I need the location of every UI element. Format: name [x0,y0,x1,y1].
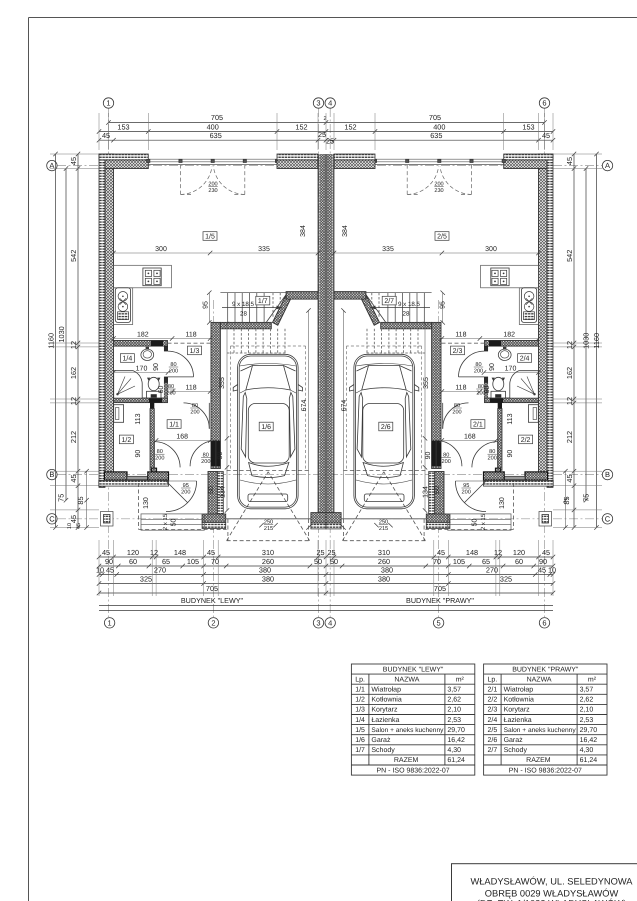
svg-text:215: 215 [379,526,388,532]
svg-text:200: 200 [181,489,190,495]
svg-text:1160: 1160 [592,333,601,349]
svg-text:5: 5 [437,618,441,627]
svg-text:270: 270 [486,565,498,574]
svg-text:3,57: 3,57 [447,687,461,694]
svg-text:2,10: 2,10 [580,707,594,714]
svg-text:380: 380 [381,565,393,574]
svg-text:335: 335 [258,246,270,253]
svg-text:1: 1 [106,99,110,108]
svg-text:384: 384 [342,225,349,237]
svg-text:200: 200 [442,459,451,465]
svg-text:45: 45 [538,565,546,574]
svg-text:61,24: 61,24 [580,757,598,764]
svg-text:PN - ISO 9836:2022-07: PN - ISO 9836:2022-07 [377,767,450,774]
svg-text:2/3: 2/3 [488,706,498,714]
svg-text:705: 705 [211,113,223,122]
svg-text:182: 182 [137,332,149,339]
svg-text:45: 45 [69,515,78,523]
svg-text:85: 85 [562,496,571,504]
svg-text:45: 45 [542,131,550,140]
svg-text:1/7: 1/7 [355,746,365,754]
svg-text:90: 90 [507,450,514,458]
svg-text:4: 4 [328,99,332,108]
svg-text:10: 10 [96,565,104,574]
svg-text:2/7: 2/7 [384,297,394,305]
svg-text:45: 45 [76,523,82,529]
svg-text:148: 148 [466,548,478,557]
svg-text:635: 635 [430,131,442,140]
svg-text:90: 90 [135,450,142,458]
svg-text:61,24: 61,24 [447,757,465,764]
svg-text:2/5: 2/5 [437,233,447,241]
svg-text:105: 105 [187,557,199,566]
svg-text:m²: m² [456,676,465,683]
svg-text:335: 335 [382,246,394,253]
svg-text:130: 130 [143,497,150,509]
svg-text:Salon + aneks kuchenny: Salon + aneks kuchenny [504,727,577,734]
svg-text:200: 200 [452,409,461,415]
svg-text:674: 674 [341,400,348,412]
svg-text:705: 705 [434,584,446,593]
svg-text:200: 200 [166,390,175,396]
svg-text:50: 50 [171,519,178,527]
svg-text:200: 200 [462,489,471,495]
svg-text:Lp.: Lp. [488,676,498,683]
svg-text:3,57: 3,57 [580,687,594,694]
svg-text:45: 45 [106,565,114,574]
svg-text:2 x 15: 2 x 15 [162,513,169,530]
svg-text:1/2: 1/2 [122,436,132,444]
svg-text:25: 25 [327,548,335,557]
svg-text:6: 6 [542,99,546,108]
svg-text:118: 118 [455,385,466,392]
svg-text:200: 200 [190,409,199,415]
svg-text:1/2: 1/2 [355,696,365,704]
svg-text:B: B [49,470,54,479]
svg-text:50: 50 [330,557,338,566]
svg-text:Salon + aneks kuchenny: Salon + aneks kuchenny [371,727,444,734]
svg-text:148: 148 [174,548,186,557]
svg-text:60: 60 [158,386,165,394]
svg-text:Lp.: Lp. [355,676,365,683]
svg-text:WŁADYSŁAWÓW, UL. SELEDYNOWA: WŁADYSŁAWÓW, UL. SELEDYNOWA [470,876,633,887]
svg-text:200: 200 [201,459,210,465]
svg-text:6: 6 [542,618,546,627]
svg-text:50: 50 [208,486,215,494]
svg-text:C: C [49,514,55,523]
svg-text:113: 113 [135,413,142,424]
svg-text:300: 300 [485,246,497,253]
svg-text:118: 118 [186,385,197,392]
svg-text:200: 200 [169,368,178,374]
svg-text:OBRĘB 0029 WŁADYSŁAWÓW: OBRĘB 0029 WŁADYSŁAWÓW [485,888,619,899]
svg-text:2/6: 2/6 [381,423,391,431]
svg-text:118: 118 [455,332,466,339]
svg-text:9 x 18.5: 9 x 18.5 [398,301,421,308]
svg-text:1/5: 1/5 [205,233,215,241]
svg-text:1/3: 1/3 [190,347,200,355]
svg-text:2/1: 2/1 [488,686,498,694]
svg-text:BUDYNEK "LEWY": BUDYNEK "LEWY" [181,596,244,605]
svg-text:120: 120 [513,548,525,557]
svg-text:2,62: 2,62 [580,697,594,704]
svg-text:2/3: 2/3 [453,347,463,355]
svg-text:1/5: 1/5 [355,726,365,734]
svg-text:118: 118 [186,332,197,339]
svg-text:168: 168 [464,433,476,440]
svg-text:2/5: 2/5 [488,726,498,734]
svg-text:355: 355 [423,377,430,389]
svg-text:542: 542 [565,250,574,262]
svg-text:355: 355 [219,377,226,389]
svg-text:200: 200 [488,456,497,462]
svg-text:134: 134 [220,486,227,498]
svg-text:1/7: 1/7 [258,297,268,305]
svg-text:1/6: 1/6 [355,736,365,744]
svg-text:2/1: 2/1 [473,421,483,429]
svg-text:BUDYNEK "LEWY": BUDYNEK "LEWY" [383,666,444,673]
svg-text:PN - ISO 9836:2022-07: PN - ISO 9836:2022-07 [509,767,582,774]
svg-text:45: 45 [102,131,110,140]
svg-text:635: 635 [210,131,222,140]
svg-text:Kotłownia: Kotłownia [504,696,534,704]
svg-text:310: 310 [378,548,390,557]
svg-text:4,30: 4,30 [580,747,594,754]
svg-text:60: 60 [515,557,523,566]
svg-text:16,42: 16,42 [580,737,598,744]
svg-text:380: 380 [259,565,271,574]
svg-text:325: 325 [500,574,512,583]
svg-text:1/4: 1/4 [355,716,365,724]
svg-text:705: 705 [429,113,441,122]
svg-text:2 x 15: 2 x 15 [480,513,487,530]
svg-text:705: 705 [206,584,218,593]
svg-text:45: 45 [207,548,215,557]
svg-text:9 x 18.5: 9 x 18.5 [232,301,255,308]
svg-text:2,10: 2,10 [447,707,461,714]
svg-text:2/6: 2/6 [488,736,498,744]
svg-text:12: 12 [150,548,158,557]
svg-text:29,70: 29,70 [447,727,465,734]
svg-text:45: 45 [69,474,78,482]
svg-text:230: 230 [434,188,443,194]
svg-text:Wiatrołap: Wiatrołap [371,686,401,694]
svg-text:12: 12 [565,397,574,405]
svg-text:25: 25 [316,548,324,557]
svg-text:2/2: 2/2 [521,436,531,444]
svg-text:380: 380 [262,574,274,583]
svg-text:152: 152 [344,122,356,131]
svg-text:162: 162 [69,367,78,379]
svg-text:60: 60 [129,557,137,566]
svg-text:2/4: 2/4 [520,355,530,363]
svg-text:4: 4 [328,618,332,627]
svg-text:200: 200 [476,390,485,396]
svg-text:Garaż: Garaż [371,736,391,744]
svg-text:4,30: 4,30 [447,747,461,754]
svg-text:170: 170 [136,365,148,372]
svg-text:50: 50 [472,519,479,527]
svg-text:168: 168 [176,433,188,440]
svg-text:A: A [49,161,54,170]
svg-text:1/1: 1/1 [355,686,365,694]
svg-text:212: 212 [565,431,574,443]
svg-text:45: 45 [437,548,445,557]
svg-text:BUDYNEK "PRAWY": BUDYNEK "PRAWY" [512,666,579,673]
svg-text:200: 200 [474,368,483,374]
svg-text:2,53: 2,53 [580,717,594,724]
svg-text:1/1: 1/1 [169,421,179,429]
svg-text:45: 45 [102,548,110,557]
svg-text:12: 12 [565,341,574,349]
svg-text:25: 25 [318,130,326,139]
svg-text:2: 2 [211,618,215,627]
svg-text:95: 95 [439,301,446,309]
svg-text:310: 310 [262,548,274,557]
svg-text:153: 153 [117,122,129,131]
svg-text:16,42: 16,42 [447,737,465,744]
svg-text:182: 182 [503,332,515,339]
svg-text:10: 10 [548,565,556,574]
svg-text:45: 45 [565,474,574,482]
svg-text:1/4: 1/4 [123,355,133,363]
svg-text:45: 45 [542,548,550,557]
svg-text:300: 300 [155,246,167,253]
svg-text:2/4: 2/4 [488,716,498,724]
svg-text:(DZ. EW. 1/1023 WŁADYSŁAWÓW): (DZ. EW. 1/1023 WŁADYSŁAWÓW) [477,898,626,901]
svg-text:1/3: 1/3 [355,706,365,714]
svg-text:RAZEM: RAZEM [526,757,551,764]
svg-text:Kotłownia: Kotłownia [371,696,401,704]
svg-text:45: 45 [565,157,574,165]
svg-text:130: 130 [499,497,506,509]
svg-text:70: 70 [433,557,441,566]
svg-text:85: 85 [76,496,85,504]
svg-text:Korytarz: Korytarz [504,707,531,714]
svg-text:B: B [605,470,610,479]
svg-text:70: 70 [211,557,219,566]
svg-text:Schody: Schody [371,746,395,754]
svg-text:90: 90 [425,452,432,460]
svg-text:C: C [605,514,611,523]
svg-text:12: 12 [69,397,78,405]
svg-text:400: 400 [433,122,445,131]
svg-text:RAZEM: RAZEM [394,757,419,764]
svg-text:1030: 1030 [581,333,590,349]
svg-text:50: 50 [314,557,322,566]
svg-text:28: 28 [403,311,410,318]
svg-text:45: 45 [69,157,78,165]
svg-text:3: 3 [316,99,320,108]
svg-text:Schody: Schody [504,746,528,754]
svg-text:170: 170 [505,365,517,372]
svg-text:12: 12 [494,548,502,557]
svg-text:2,62: 2,62 [447,697,461,704]
svg-text:29,70: 29,70 [580,727,598,734]
svg-text:400: 400 [207,122,219,131]
svg-text:325: 325 [140,574,152,583]
svg-text:28: 28 [240,311,247,318]
svg-text:230: 230 [208,188,217,194]
svg-text:134: 134 [423,486,430,498]
svg-text:90: 90 [153,363,160,371]
svg-text:1160: 1160 [46,333,55,349]
svg-text:Korytarz: Korytarz [371,707,398,714]
svg-text:1: 1 [108,618,112,627]
svg-text:50: 50 [434,486,441,494]
svg-text:1030: 1030 [57,326,66,342]
svg-text:Łazienka: Łazienka [504,716,532,724]
svg-text:NAZWA: NAZWA [394,676,419,683]
svg-text:674: 674 [301,400,308,412]
svg-text:542: 542 [69,250,78,262]
svg-text:75: 75 [57,494,66,502]
svg-text:2,53: 2,53 [447,717,461,724]
svg-text:2/7: 2/7 [488,746,498,754]
svg-text:A: A [605,161,610,170]
svg-text:270: 270 [154,565,166,574]
svg-text:25: 25 [326,137,334,146]
svg-text:3: 3 [316,618,320,627]
svg-text:2/2: 2/2 [488,696,498,704]
svg-text:12: 12 [69,341,78,349]
svg-text:152: 152 [295,122,307,131]
svg-text:75: 75 [582,494,591,502]
svg-text:m²: m² [588,676,597,683]
svg-text:162: 162 [565,367,574,379]
svg-text:Garaż: Garaż [504,736,524,744]
svg-text:BUDYNEK "PRAWY": BUDYNEK "PRAWY" [406,596,474,605]
svg-text:215: 215 [264,526,273,532]
svg-text:90: 90 [217,452,224,460]
svg-text:Wiatrołap: Wiatrołap [504,686,534,694]
svg-text:NAZWA: NAZWA [527,676,552,683]
svg-text:90: 90 [489,363,496,371]
svg-text:380: 380 [378,574,390,583]
svg-text:200: 200 [155,456,164,462]
svg-text:384: 384 [300,225,307,237]
svg-text:113: 113 [507,413,514,424]
svg-text:212: 212 [69,431,78,443]
svg-text:Łazienka: Łazienka [371,716,399,724]
svg-text:105: 105 [453,557,465,566]
svg-text:1/6: 1/6 [261,423,271,431]
svg-text:153: 153 [522,122,534,131]
svg-text:120: 120 [127,548,139,557]
svg-text:95: 95 [203,301,210,309]
